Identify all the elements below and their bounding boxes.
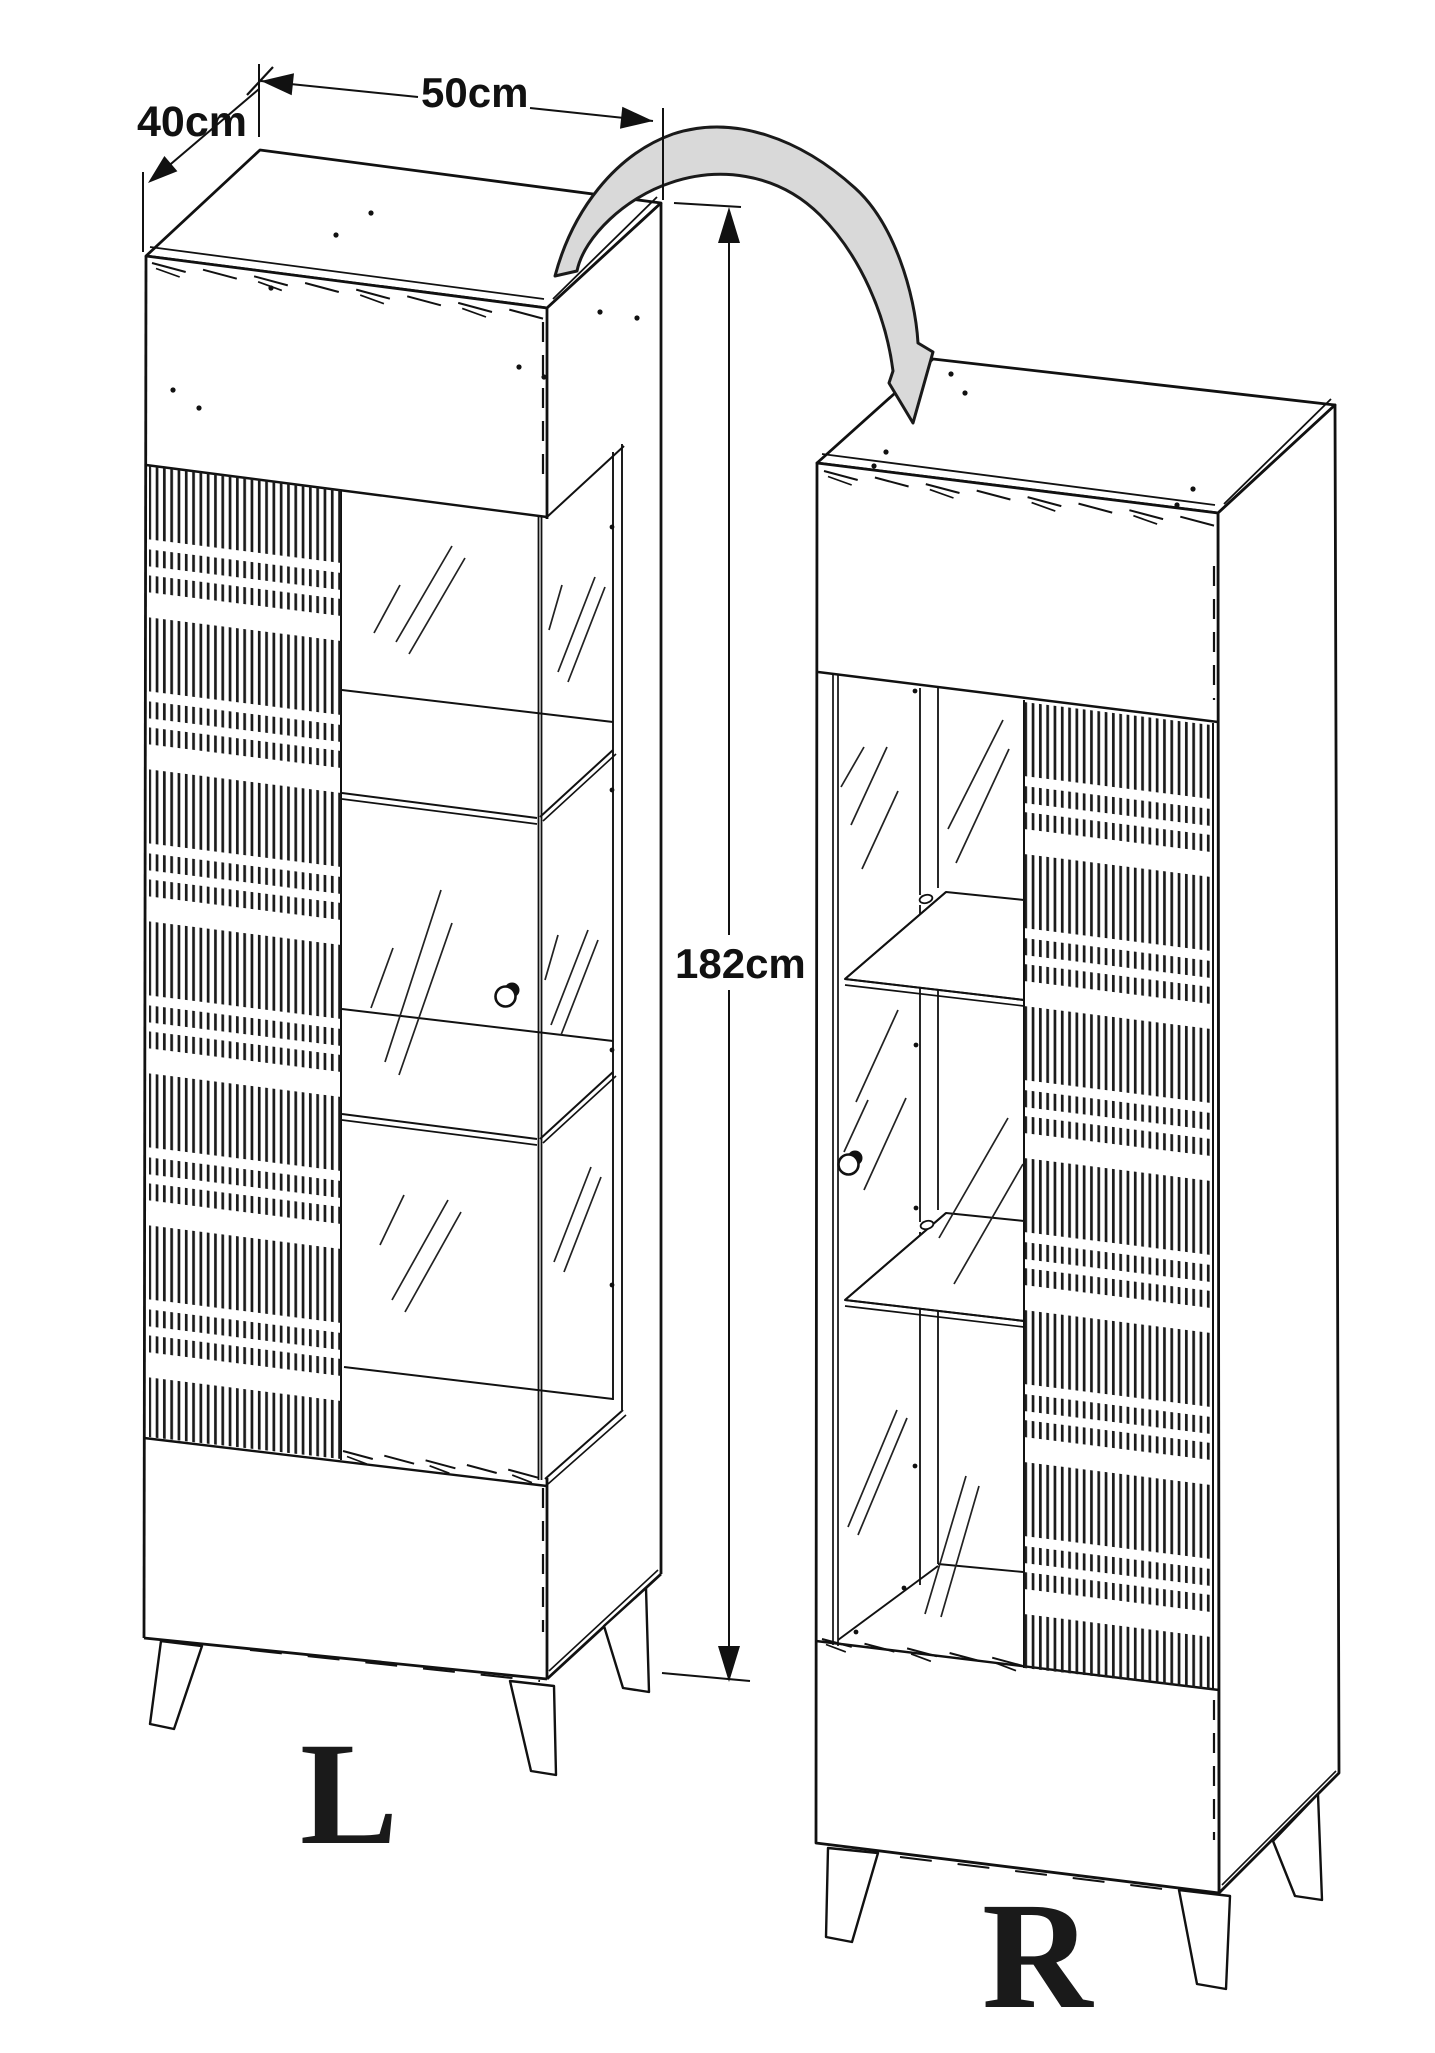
- svg-text:182cm: 182cm: [675, 940, 806, 987]
- svg-text:L: L: [300, 1712, 398, 1875]
- svg-text:40cm: 40cm: [137, 98, 247, 146]
- svg-text:50cm: 50cm: [421, 69, 528, 116]
- svg-text:R: R: [982, 1872, 1094, 2041]
